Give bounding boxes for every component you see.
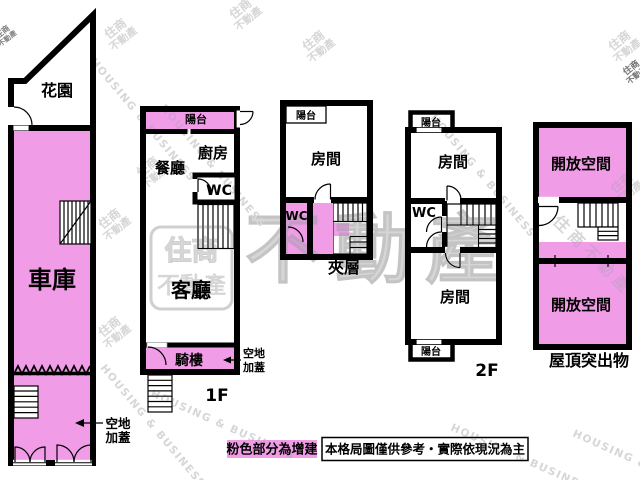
f1-dining-label: 餐廳 [155,159,185,177]
annotation-line2: 加蓋 [242,360,265,374]
legend-pink-note: 粉色部分為增建 [226,442,317,458]
unit-mezzanine: 陽台 房間 WC 夾層 [283,103,370,277]
f2-balcony-bottom-label: 陽台 [421,345,441,358]
f1-external-stairs [148,375,172,412]
roof-door-opening [538,197,559,203]
annotation-line2: 加蓋 [104,430,131,445]
brand-stamp: 住商 不動產 [92,311,134,352]
garage-threshold [14,126,29,131]
f2-floor-label: 2F [475,361,498,381]
annotation-line1: 空地 [105,416,131,431]
garden-door-opening [8,107,14,125]
unit-garage: 花園 車庫 空地 加蓋 [8,15,131,465]
mezz-balcony-label: 陽台 [296,109,316,122]
annotation-line1: 空地 [243,346,265,360]
roof-open-bottom-label: 開放空間 [551,296,611,314]
brand-en-text: HOUSING & BUSINESS [571,428,640,480]
stamp-text: 不動產 [232,4,265,34]
f2-stairs [447,204,496,248]
garden-area [11,15,93,128]
red-stamp-right: 住商 不動產 [618,56,640,87]
back-yard-stairs [14,386,38,418]
brand-stamp: 住商 不動產 [92,203,134,244]
f2-wc-label: WC [412,206,436,221]
f2-room-top-label: 房間 [438,153,468,171]
red-stamp-left: 住商 不動產 [0,21,18,48]
f1-balcony-tick [188,129,191,134]
roof-open-top-label: 開放空間 [551,155,611,173]
brand-stamp: 住商 不動產 [223,0,265,34]
unit-1f: WC 陽台 廚房 餐廳 客廳 騎樓 空地 加蓋 1F [143,109,265,412]
stamp-text: 住商 [101,15,129,42]
stamp-text: 不動產 [101,322,134,352]
stamp-text: 不動產 [305,36,338,66]
floor-plan-canvas: 花園 車庫 空地 加蓋 WC [0,0,640,480]
stamp-text: 住商 [299,27,327,54]
mezz-room-door-opening [314,197,331,203]
f2-balcony-top-label: 陽台 [421,116,441,129]
brand-stamp: 住商 不動產 [98,13,140,54]
garage-stairs [60,201,91,244]
floor-plan-page: 花園 車庫 空地 加蓋 WC [0,0,640,480]
mezz-floor-label: 夾層 [328,258,360,277]
f1-arcade-label: 騎樓 [175,352,203,369]
unit-2f: 陽台 陽台 房間 WC 房間 2F [408,113,499,382]
brand-stamp: 住商 不動產 [296,25,338,66]
mezz-wc-label: WC [285,209,307,223]
stamp-text: 住商 [605,27,633,54]
f1-wc-room: WC [192,175,237,202]
mezz-room-label: 房間 [311,150,341,168]
mezz-corridor-pink [313,203,333,254]
f2-balcony-bottom-opening [416,340,442,344]
stamp-text: 住商 [226,0,254,22]
stamp-text: 住商 [95,313,123,340]
f1-floor-label: 1F [205,386,228,406]
unit-roof: 開放空間 開放空間 屋頂突出物 [536,125,629,370]
disclaimer-text: 本格局圖僅供參考・實際依現況為主 [325,442,526,457]
roof-strip-pink [539,242,626,258]
legend: 粉色部分為增建 本格局圖僅供參考・實際依現況為主 [226,438,528,461]
f2-door-opening-2 [445,247,460,253]
roof-floor-label: 屋頂突出物 [549,351,629,370]
garden-label: 花園 [41,81,73,100]
f2-room-bottom-label: 房間 [440,288,470,306]
stamp-text: 住商 [95,205,123,232]
stamp-text: 不動產 [107,24,140,54]
garage-label: 車庫 [28,266,76,294]
f1-living-label: 客廳 [170,278,211,302]
f1-wc-label: WC [206,183,232,199]
stamp-text: 不動產 [101,214,134,244]
f1-balcony-label: 陽台 [185,112,207,126]
mezz-corridor-stub-pink [334,223,350,236]
f1-stairs [198,205,234,249]
f1-kitchen-label: 廚房 [198,144,228,162]
